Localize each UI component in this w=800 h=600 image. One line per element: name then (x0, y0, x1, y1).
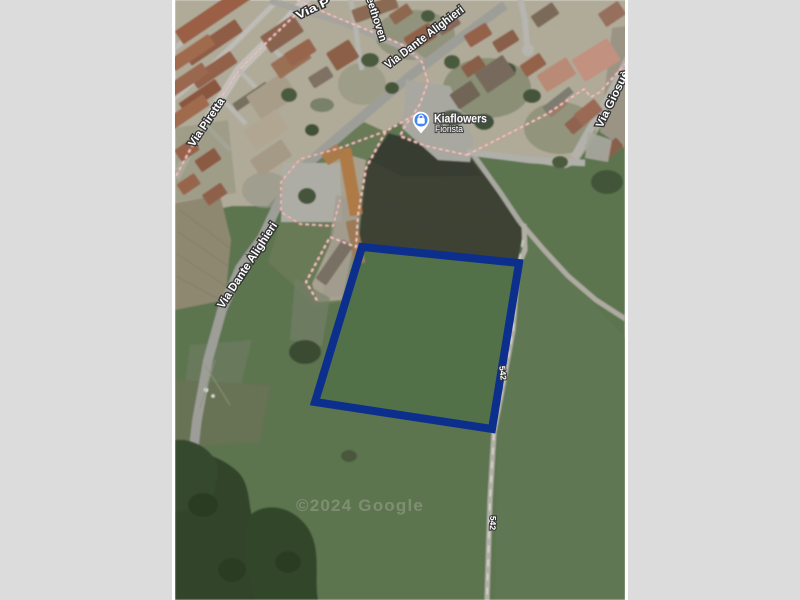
svg-text:542: 542 (497, 365, 508, 380)
svg-text:542: 542 (488, 516, 498, 531)
svg-text:Fiorista: Fiorista (435, 124, 463, 134)
svg-text:©2024 Google: ©2024 Google (296, 496, 424, 515)
